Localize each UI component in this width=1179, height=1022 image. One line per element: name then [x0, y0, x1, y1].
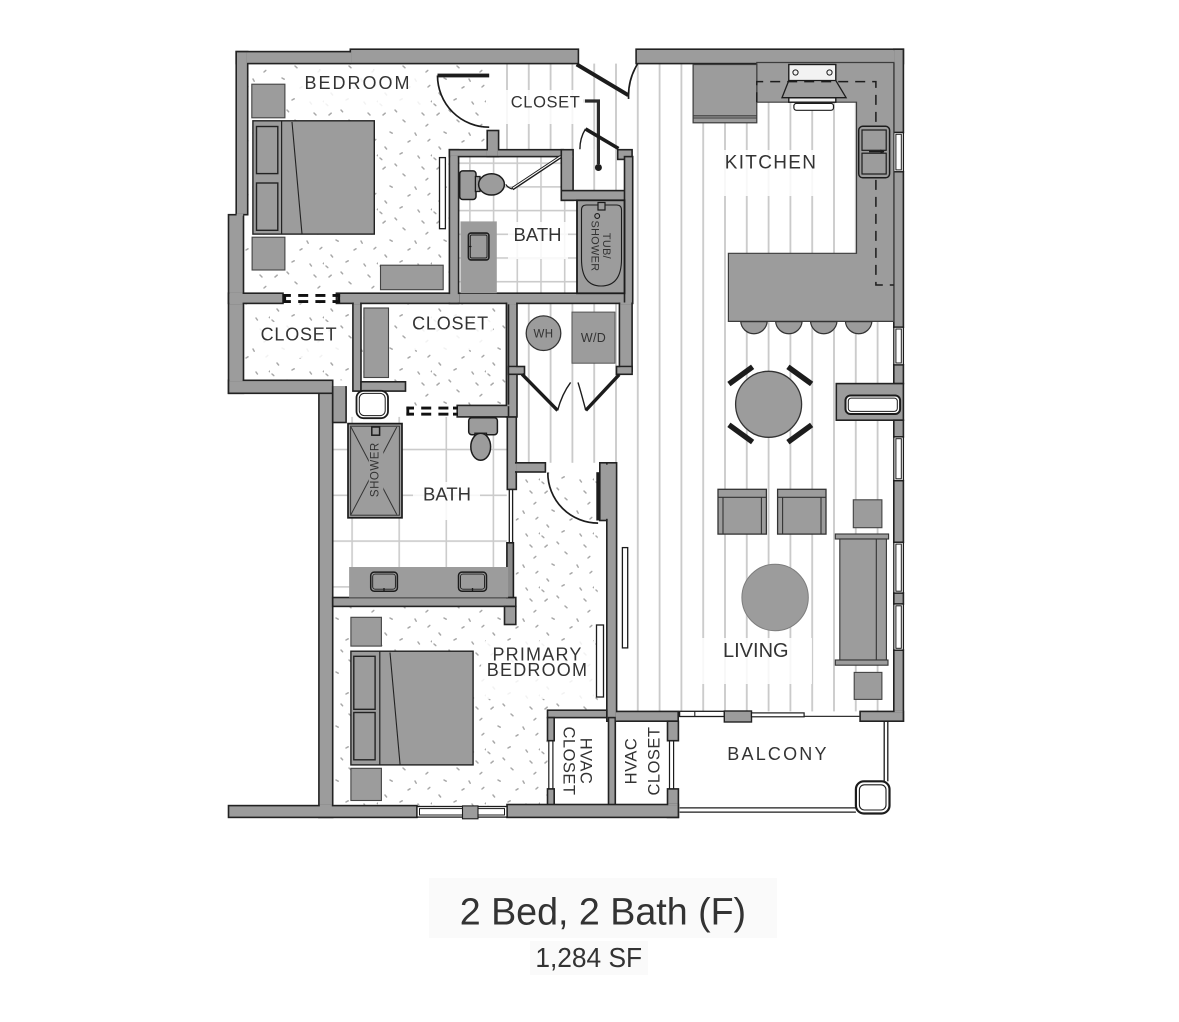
svg-text:BATH: BATH [423, 483, 471, 504]
svg-text:BEDROOM: BEDROOM [487, 660, 588, 680]
svg-text:CLOSET: CLOSET [646, 726, 664, 795]
svg-text:1,284 SF: 1,284 SF [535, 941, 642, 973]
svg-text:SHOWER: SHOWER [589, 221, 601, 272]
svg-text:SHOWER: SHOWER [370, 442, 382, 497]
svg-text:LIVING: LIVING [723, 640, 789, 662]
svg-text:HVAC: HVAC [623, 738, 641, 785]
svg-text:CLOSET: CLOSET [560, 726, 578, 795]
svg-text:CLOSET: CLOSET [412, 314, 489, 334]
svg-text:W/D: W/D [581, 331, 606, 345]
svg-text:HVAC: HVAC [577, 738, 595, 785]
svg-text:KITCHEN: KITCHEN [725, 153, 818, 174]
svg-text:BALCONY: BALCONY [727, 744, 828, 764]
svg-text:CLOSET: CLOSET [261, 325, 338, 345]
svg-text:WH: WH [534, 328, 554, 340]
svg-text:TUB/: TUB/ [600, 233, 612, 259]
svg-text:BATH: BATH [514, 224, 562, 245]
svg-text:CLOSET: CLOSET [511, 94, 581, 112]
svg-text:BEDROOM: BEDROOM [304, 73, 411, 93]
svg-text:2 Bed, 2 Bath (F): 2 Bed, 2 Bath (F) [460, 891, 746, 933]
